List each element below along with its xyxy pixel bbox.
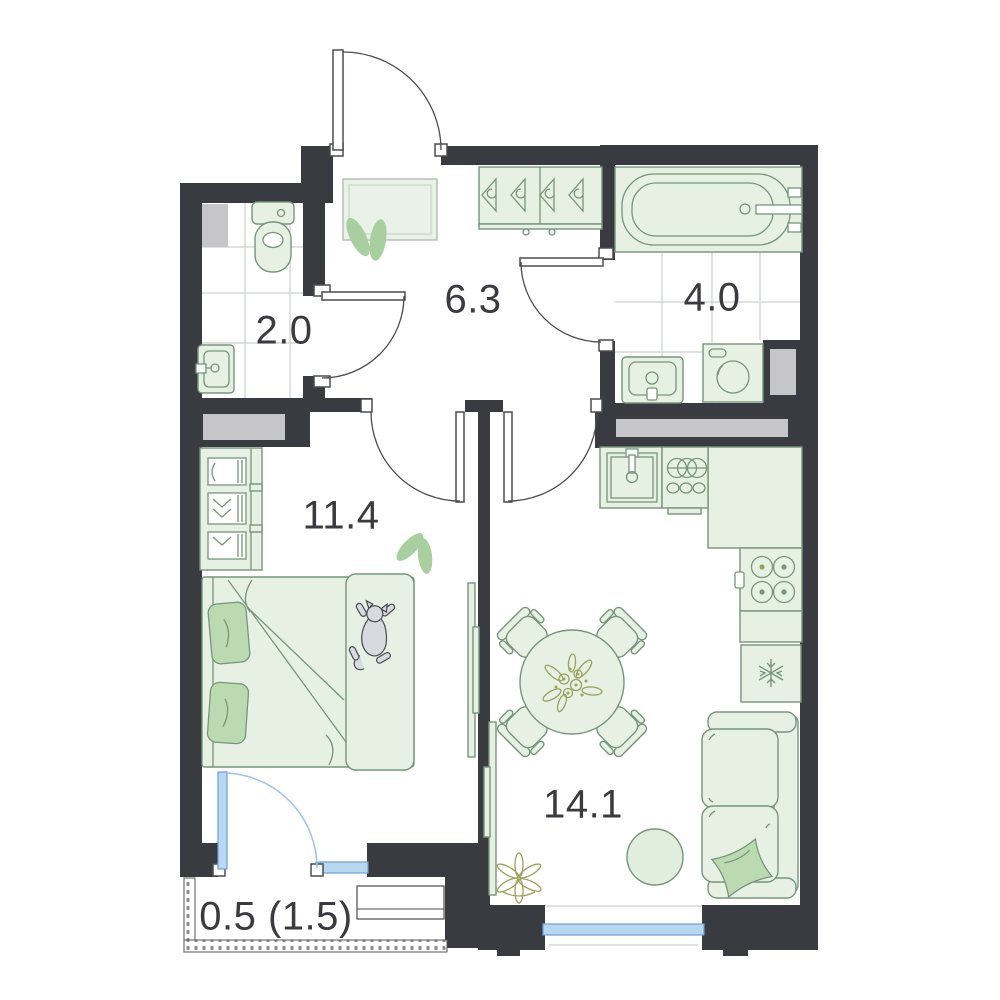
bathroom-washbasin-icon [622, 357, 683, 403]
hob-dishes-icon [662, 447, 708, 514]
floor-plan: 2.0 6.3 4.0 11.4 14.1 0.5 (1.5) [0, 0, 1000, 1000]
counter-section [740, 611, 802, 642]
counter-corner [708, 447, 802, 548]
balcony-railing-icon [184, 940, 447, 952]
room-label-balcony: 0.5 (1.5) [199, 895, 352, 940]
corner-plant-icon [496, 853, 543, 903]
bathtub-icon [615, 167, 802, 252]
round-rug-icon [627, 829, 683, 885]
bedroom-tv-icon [468, 583, 479, 757]
wall-segment [180, 183, 202, 877]
bathroom-door-icon [520, 248, 613, 351]
wall-segment [800, 160, 818, 950]
vent-shaft-icon [203, 414, 285, 440]
cooktop-icon [735, 548, 802, 611]
balcony-bench-icon [357, 886, 444, 919]
vent-shaft-icon [202, 204, 228, 247]
wall-segment [465, 400, 503, 412]
bedroom-window-icon [316, 862, 368, 873]
bedroom-plant-leaves-icon [392, 529, 434, 575]
living-room-window-icon [543, 924, 704, 935]
floor-plan-drawing [0, 0, 1000, 1000]
kitchen-sink-icon [600, 447, 662, 508]
wall-segment [478, 905, 545, 950]
washing-machine-icon [703, 344, 763, 402]
vent-shaft-icon [616, 419, 788, 437]
room-label-living-kitchen: 14.1 [543, 783, 623, 828]
wall-segment [301, 146, 333, 203]
wall-segment [303, 200, 325, 296]
wall-segment [702, 905, 818, 950]
balcony-door-icon [213, 772, 323, 876]
room-label-bedroom: 11.4 [303, 494, 380, 539]
fridge-icon [741, 645, 801, 702]
entrance-door-icon [330, 50, 447, 156]
wardrobe-icon [200, 448, 262, 570]
bedroom-door-icon [361, 399, 464, 502]
room-label-toilet: 2.0 [255, 309, 312, 354]
dining-set [493, 603, 651, 761]
room-label-hallway: 6.3 [444, 278, 501, 323]
room-label-bathroom: 4.0 [683, 276, 740, 321]
toilet-door-icon [314, 285, 405, 387]
wall-segment [441, 146, 615, 165]
toilet-icon [252, 202, 294, 272]
wall-segment [600, 145, 818, 165]
wall-segment [180, 398, 372, 412]
toilet-washbasin-icon [196, 345, 234, 393]
wall-segment [723, 950, 748, 956]
vent-shaft-icon [770, 349, 796, 395]
balcony-railing-icon [184, 878, 195, 950]
sofa-icon [702, 712, 798, 898]
wall-segment [497, 948, 520, 956]
kitchen-counter [600, 447, 802, 702]
living-room-door-icon [504, 399, 602, 502]
coat-rack-icon [479, 167, 602, 235]
